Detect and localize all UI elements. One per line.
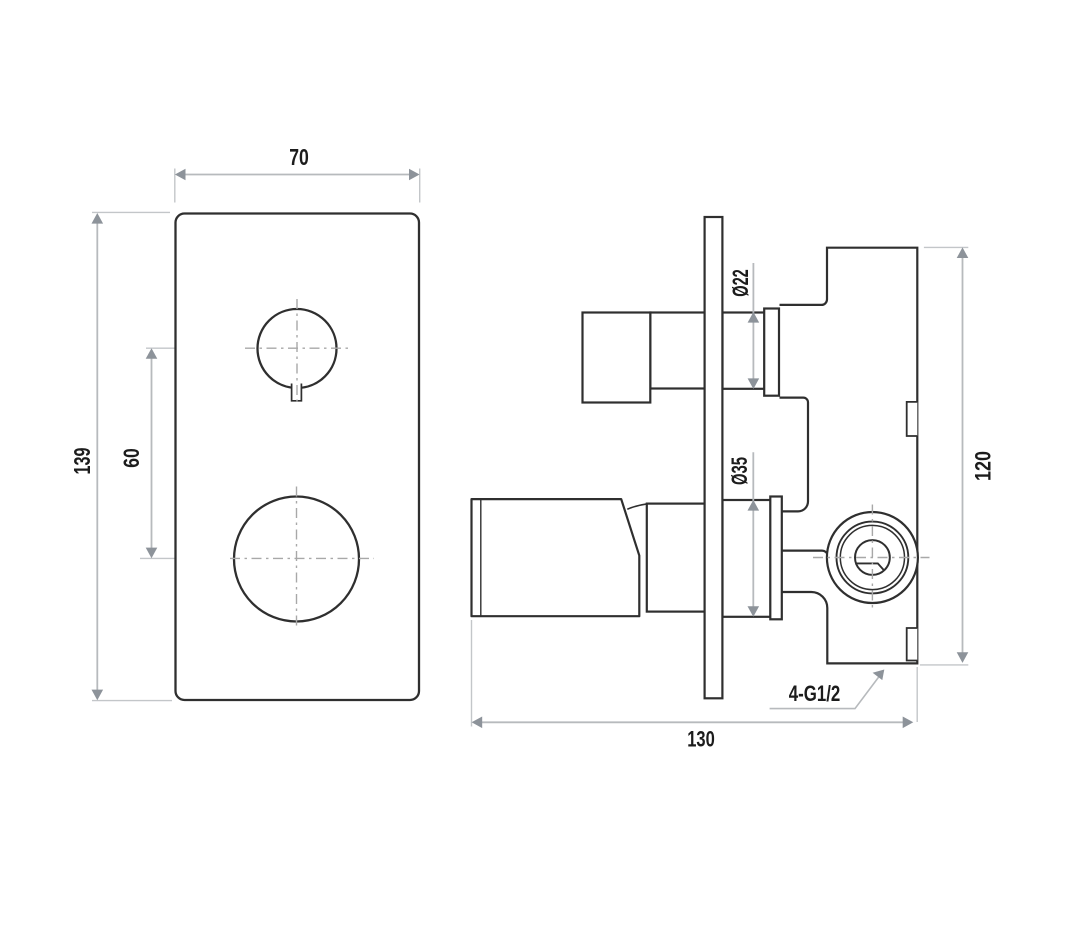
svg-text:60: 60 [119, 448, 144, 468]
svg-text:130: 130 [687, 727, 715, 752]
svg-text:70: 70 [289, 144, 309, 170]
svg-text:120: 120 [971, 451, 996, 481]
svg-text:139: 139 [69, 448, 95, 475]
svg-text:Ø35: Ø35 [727, 457, 752, 485]
svg-text:Ø22: Ø22 [728, 269, 753, 297]
svg-text:4-G1/2: 4-G1/2 [789, 681, 841, 706]
